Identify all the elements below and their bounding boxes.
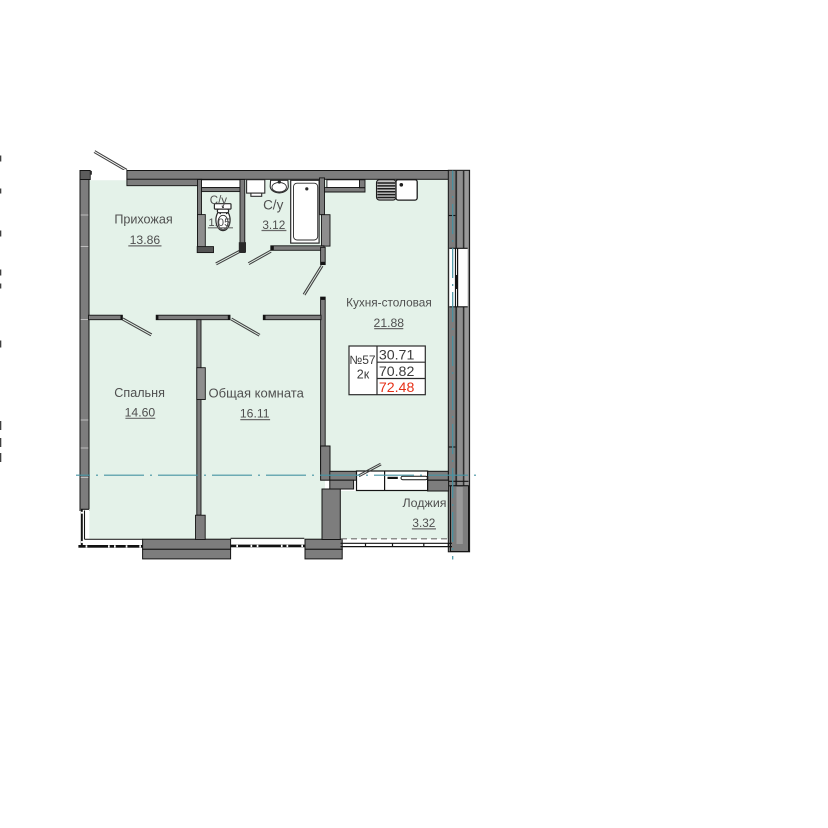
svg-text:Общая комната: Общая комната — [209, 385, 305, 400]
svg-text:№57: №57 — [349, 353, 376, 367]
svg-text:72.48: 72.48 — [379, 380, 415, 396]
svg-text:70.82: 70.82 — [379, 364, 415, 380]
svg-text:13.86: 13.86 — [130, 233, 161, 247]
svg-text:21.88: 21.88 — [374, 316, 405, 330]
svg-text:30.71: 30.71 — [379, 348, 415, 364]
svg-text:Прихожая: Прихожая — [114, 213, 172, 227]
svg-text:С/у: С/у — [263, 198, 284, 213]
svg-text:С/у: С/у — [210, 195, 228, 207]
svg-text:Кухня-столовая: Кухня-столовая — [346, 295, 432, 309]
svg-text:2к: 2к — [357, 367, 370, 381]
svg-text:Лоджия: Лоджия — [403, 496, 447, 510]
svg-text:Спальня: Спальня — [114, 386, 165, 400]
svg-text:14.60: 14.60 — [125, 405, 156, 419]
svg-text:16.11: 16.11 — [240, 406, 270, 420]
svg-text:3.32: 3.32 — [412, 516, 435, 530]
svg-text:3.12: 3.12 — [262, 218, 285, 232]
